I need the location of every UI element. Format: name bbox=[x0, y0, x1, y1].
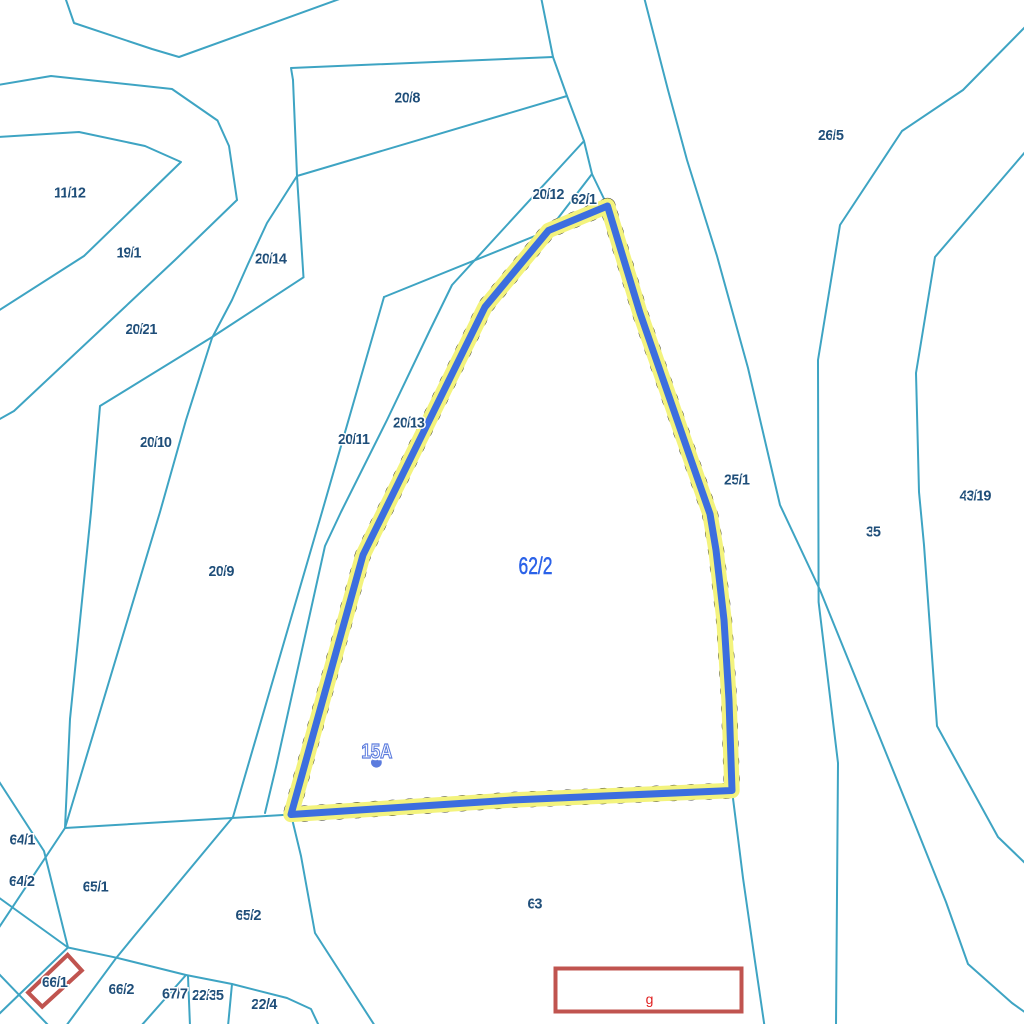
svg-text:20/8: 20/8 bbox=[395, 91, 421, 107]
svg-text:22/4: 22/4 bbox=[251, 997, 277, 1013]
svg-text:g: g bbox=[646, 991, 654, 1007]
svg-text:20/13: 20/13 bbox=[393, 416, 425, 432]
svg-text:20/12: 20/12 bbox=[533, 187, 565, 203]
svg-text:64/1: 64/1 bbox=[10, 833, 36, 849]
svg-text:43/19: 43/19 bbox=[960, 489, 992, 505]
svg-text:20/14: 20/14 bbox=[255, 252, 287, 268]
svg-text:19/1: 19/1 bbox=[117, 246, 142, 262]
svg-text:11/12: 11/12 bbox=[54, 186, 86, 202]
svg-text:65/1: 65/1 bbox=[83, 880, 109, 896]
svg-text:62/2: 62/2 bbox=[519, 553, 553, 580]
svg-text:26/5: 26/5 bbox=[818, 128, 844, 144]
svg-text:65/2: 65/2 bbox=[236, 908, 262, 924]
svg-text:20/9: 20/9 bbox=[209, 564, 235, 580]
svg-text:66/2: 66/2 bbox=[109, 982, 135, 998]
svg-text:62/1: 62/1 bbox=[571, 192, 597, 208]
svg-text:22/35: 22/35 bbox=[192, 988, 224, 1004]
svg-text:20/11: 20/11 bbox=[338, 432, 370, 448]
svg-text:64/2: 64/2 bbox=[9, 874, 35, 890]
svg-text:66/1: 66/1 bbox=[42, 975, 68, 991]
svg-text:15A: 15A bbox=[361, 741, 392, 763]
svg-text:67/7: 67/7 bbox=[162, 987, 188, 1003]
svg-text:20/21: 20/21 bbox=[126, 322, 158, 338]
svg-text:35: 35 bbox=[866, 525, 881, 541]
svg-text:63: 63 bbox=[528, 897, 543, 913]
svg-text:20/10: 20/10 bbox=[140, 435, 172, 451]
svg-text:25/1: 25/1 bbox=[724, 473, 750, 489]
